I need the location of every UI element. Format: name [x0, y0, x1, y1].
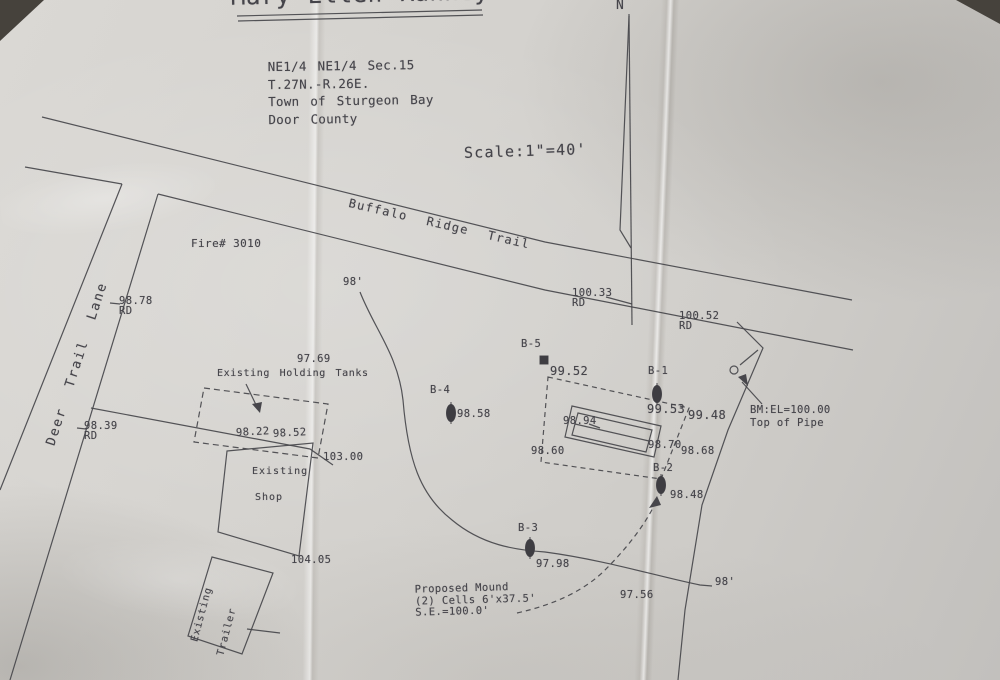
rd-abbrev: RD: [572, 298, 612, 308]
drive-elevation-98-22: 98.22: [236, 426, 270, 439]
road-elevation-100-52: 100.52 RD: [679, 311, 719, 331]
deer-trail-lane-road-lines: [0, 184, 158, 680]
legal-line-4: Door County: [268, 108, 434, 128]
holding-tanks-elevation: 97.69: [297, 354, 331, 365]
boring-b5-label: B-5: [521, 339, 541, 350]
boring-b2-elevation: 98.48: [670, 490, 704, 501]
boring-b5-symbol: [540, 356, 548, 364]
boring-b3-symbol: [526, 540, 535, 557]
benchmark-note: BM:EL=100.00 Top of Pipe: [750, 404, 831, 430]
spot-elevation-99-48: 99.48: [688, 410, 726, 421]
drive-elevation-98-52: 98.52: [273, 427, 307, 440]
boring-b4-label: B-4: [430, 385, 450, 396]
spot-elevation-97-56: 97.56: [620, 590, 654, 601]
legal-line-1: NE1/4 NE1/4 Sec.15: [268, 56, 434, 76]
spot-elevation-98-70: 98.70: [648, 440, 682, 451]
legal-line-3: Town of Sturgeon Bay: [268, 91, 434, 111]
benchmark-note-line1: BM:EL=100.00: [750, 404, 831, 417]
legal-description: NE1/4 NE1/4 Sec.15 T.27N.-R.26E. Town of…: [268, 56, 434, 128]
survey-site-plan: Mary Ellen Rahney NE1/4 NE1/4 Sec.15 T.2…: [0, 0, 1000, 680]
shop-corner-elevation: 104.05: [291, 555, 331, 566]
contour-98-label-top: 98': [343, 277, 363, 288]
spot-elevation-99-52: 99.52: [550, 366, 588, 377]
north-arrow: [620, 14, 632, 325]
boring-b2-label: B-2: [653, 463, 673, 474]
holding-tanks-label: Existing Holding Tanks: [217, 368, 369, 379]
north-label: N: [616, 0, 624, 11]
boring-b3-elevation: 97.98: [536, 559, 570, 570]
boring-b3-label: B-3: [518, 523, 538, 534]
boring-b4-symbol: [447, 405, 456, 422]
boring-b1-label: B-1: [648, 366, 668, 377]
proposed-mound-note: Proposed Mound (2) Cells 6'x37.5' S.E.=1…: [415, 581, 537, 619]
fire-number-label: Fire# 3010: [191, 238, 261, 249]
road-elevation-100-33: 100.33 RD: [572, 288, 612, 308]
holding-tanks-arrow: [246, 384, 262, 413]
shop-label-line1: Existing: [252, 466, 308, 477]
title-underline: [237, 10, 483, 21]
drawing-linework: [0, 0, 1000, 680]
boring-b1-elevation: 99.53: [647, 404, 685, 415]
spot-elevation-98-68: 98.68: [681, 446, 715, 457]
boring-b4-elevation: 98.58: [457, 409, 491, 420]
shop-label-line2: Shop: [255, 492, 283, 503]
shop-floor-elevation: 103.00: [323, 452, 363, 463]
boring-symbols: [447, 356, 666, 559]
rd-abbrev: RD: [84, 431, 118, 441]
benchmark-symbol: [730, 350, 762, 404]
east-boundary-line: [678, 322, 763, 680]
spot-elevation-98-60: 98.60: [531, 446, 565, 457]
rd-abbrev: RD: [679, 321, 719, 331]
contour-98-label-right: 98': [715, 577, 735, 588]
boring-b2-symbol: [657, 477, 666, 494]
boring-b1-symbol: [653, 386, 662, 403]
legal-line-2: T.27N.-R.26E.: [268, 73, 434, 93]
benchmark-note-line2: Top of Pipe: [750, 417, 831, 430]
owner-name: Mary Ellen Rahney: [231, 0, 489, 3]
road-elevation-98-78: 98.78 RD: [119, 296, 153, 316]
road-elevation-98-39: 98.39 RD: [84, 421, 118, 441]
rd-abbrev: RD: [119, 306, 153, 316]
spot-elevation-98-94: 98.94: [563, 416, 597, 427]
scale-label: Scale:1"=40': [464, 144, 587, 159]
